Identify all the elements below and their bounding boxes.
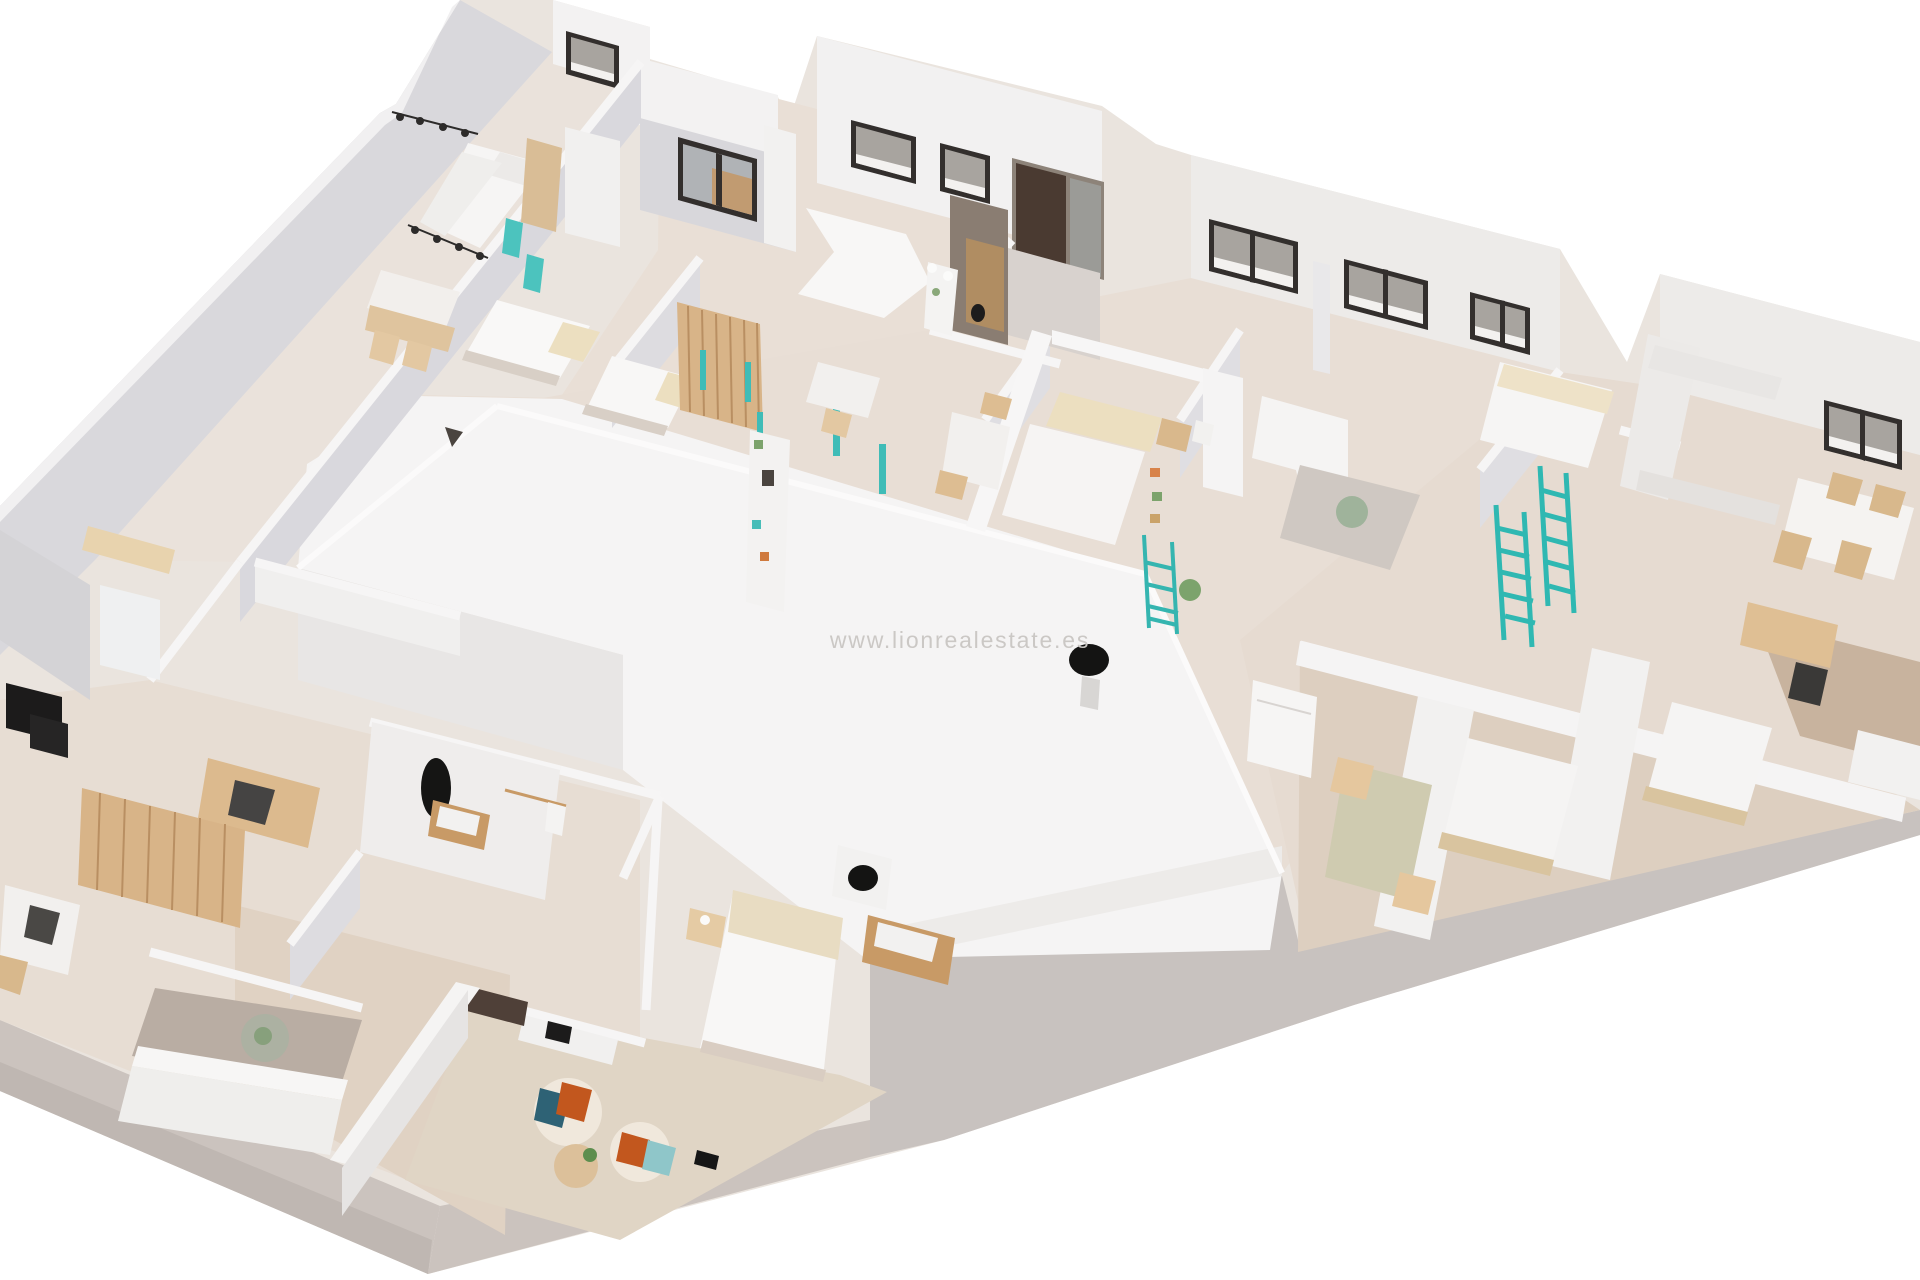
svg-text:www.lionrealestate.es: www.lionrealestate.es (829, 627, 1090, 653)
